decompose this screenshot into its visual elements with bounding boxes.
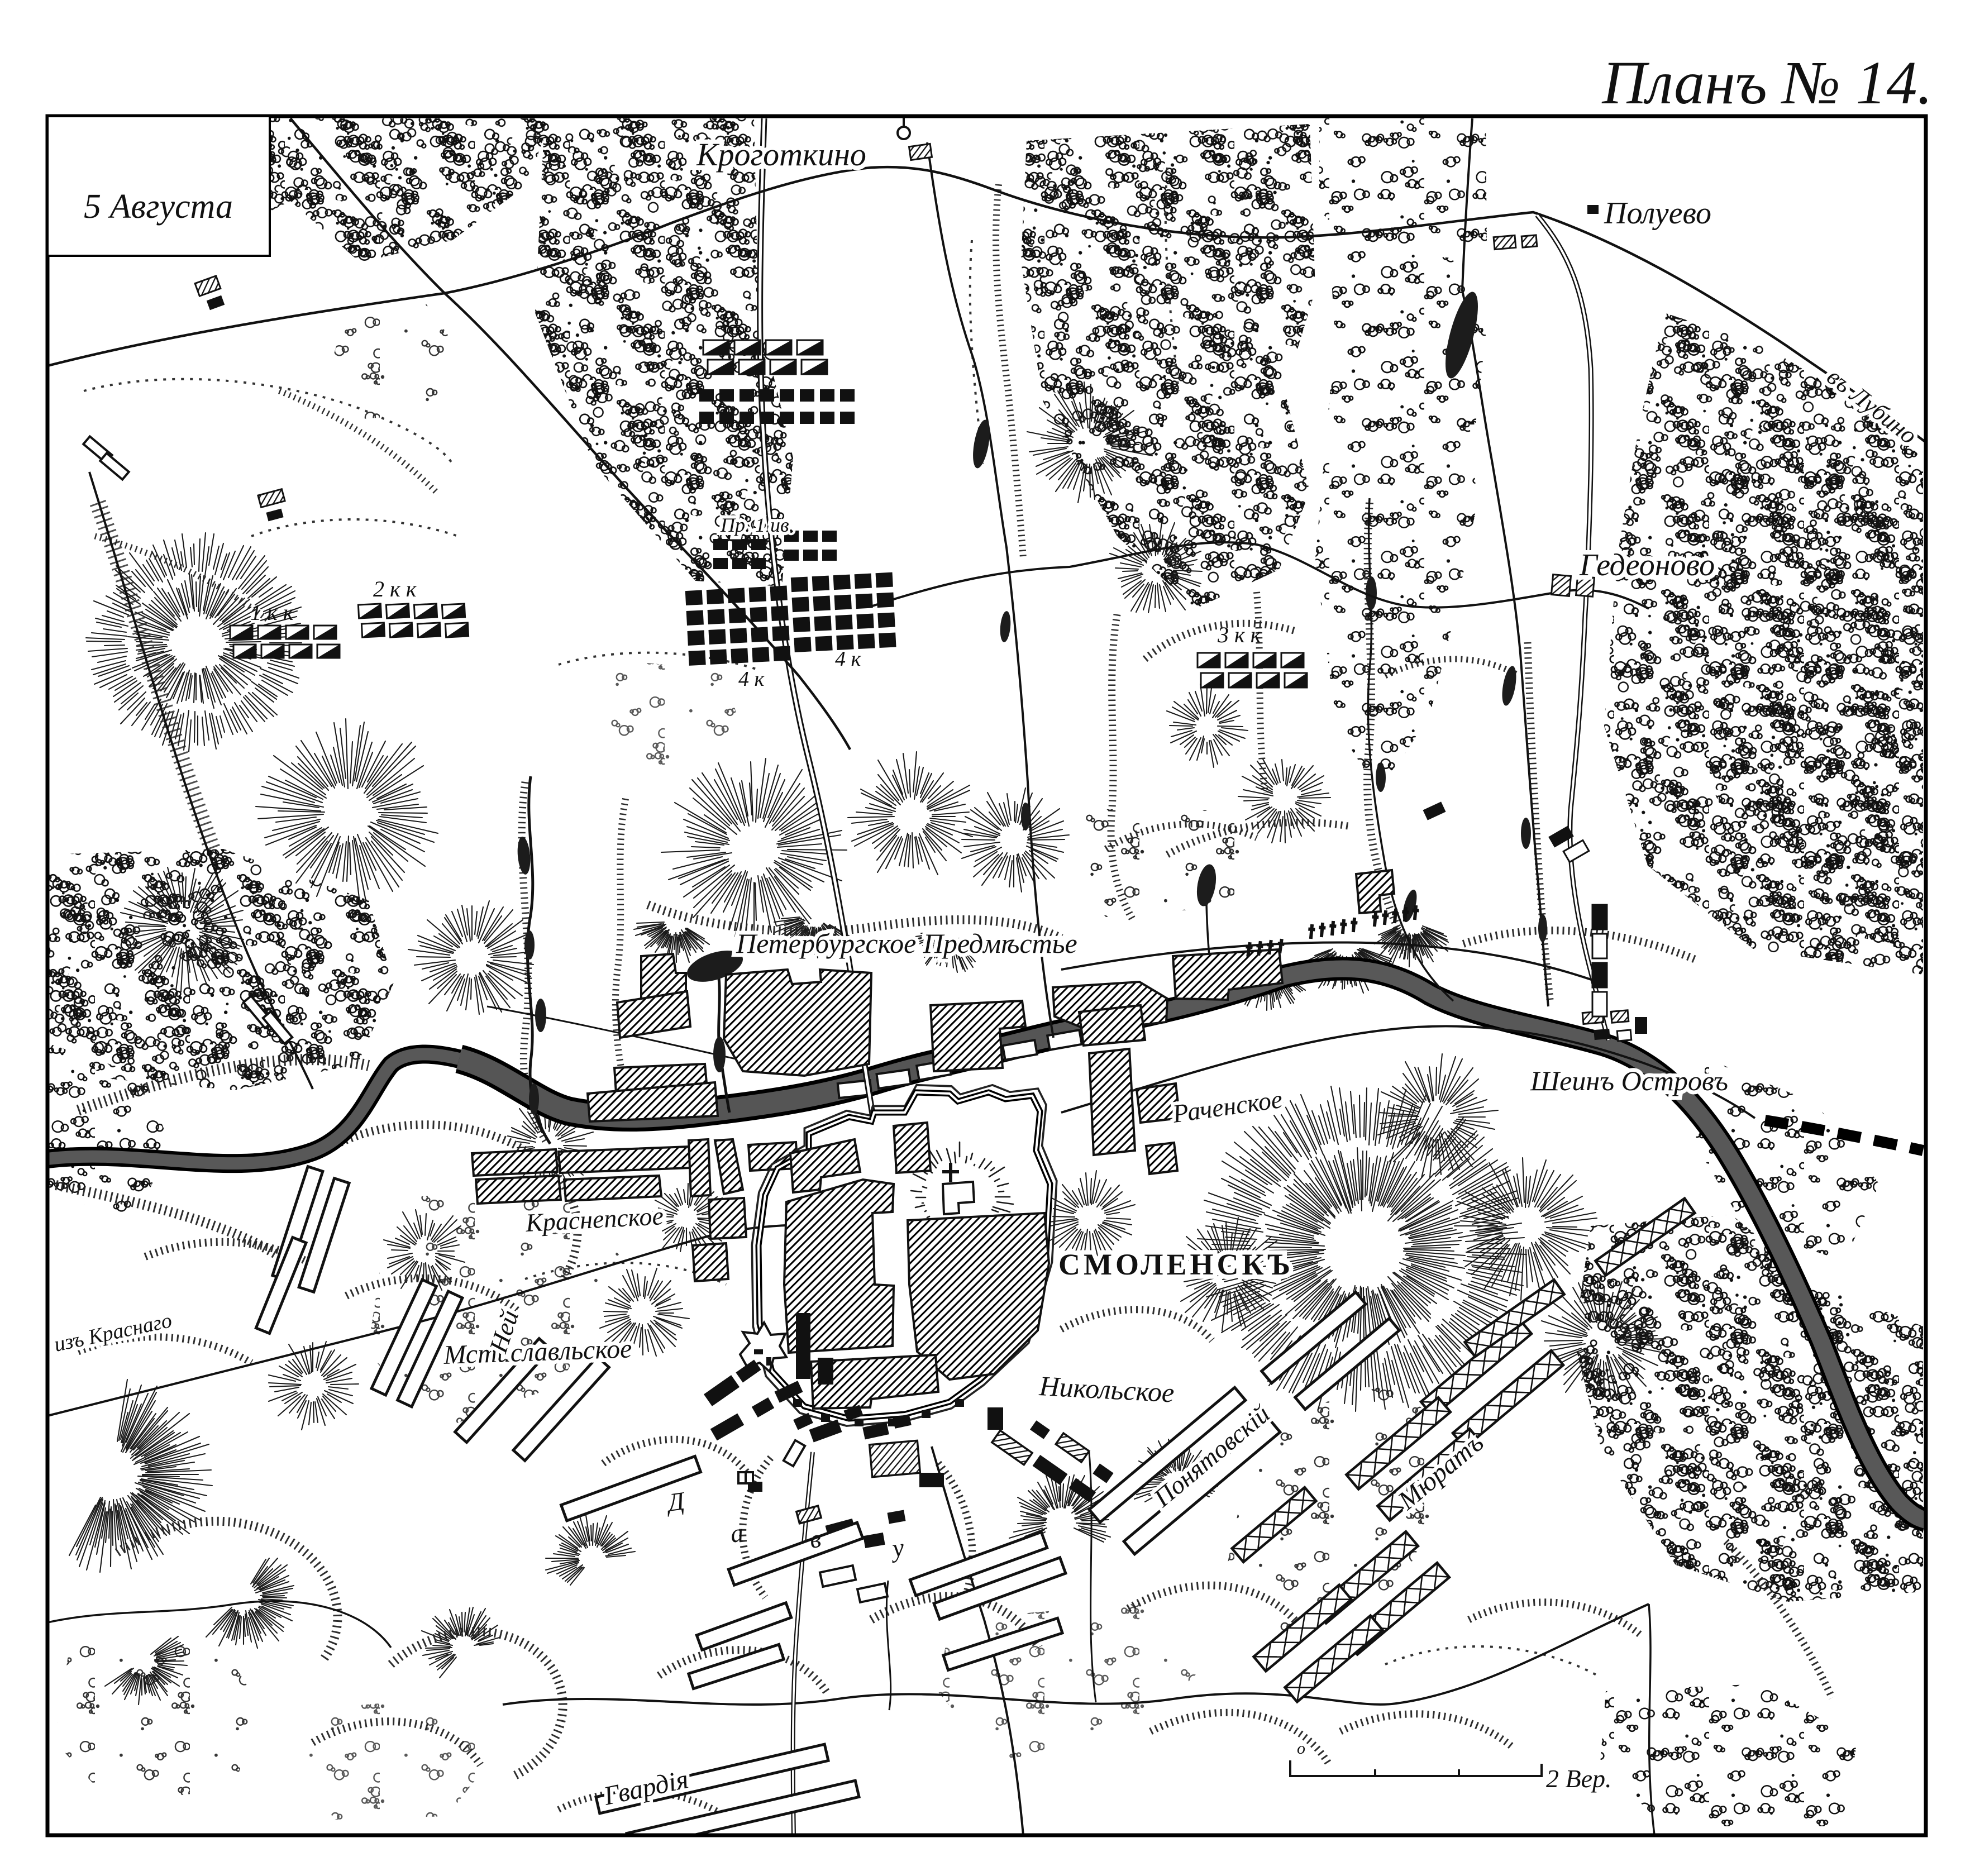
svg-text:3 к к: 3 к к	[1217, 622, 1261, 647]
svg-text:СМОЛЕНСКЪ: СМОЛЕНСКЪ	[1058, 1248, 1294, 1281]
svg-text:Петербургское Предмѣстье: Петербургское Предмѣстье	[736, 928, 1077, 959]
svg-text:Шеинъ Островъ: Шеинъ Островъ	[1530, 1065, 1728, 1096]
svg-text:4 к: 4 к	[835, 647, 862, 671]
svg-text:Гедеоново: Гедеоново	[1579, 548, 1715, 583]
svg-text:5 Августа: 5 Августа	[84, 188, 233, 226]
svg-text:2 к к: 2 к к	[373, 576, 417, 602]
svg-text:Полуево: Полуево	[1604, 196, 1711, 231]
svg-text:2 Вер.: 2 Вер.	[1546, 1764, 1612, 1793]
svg-text:Кроготкино: Кроготкино	[696, 136, 866, 173]
svg-text:о: о	[1297, 1739, 1305, 1758]
svg-text:Планъ № 14.: Планъ № 14.	[1601, 49, 1933, 117]
svg-text:1 к к: 1 к к	[250, 600, 294, 625]
svg-text:4 к: 4 к	[738, 667, 765, 691]
svg-text:Пр. 1 ив.: Пр. 1 ив.	[720, 514, 794, 536]
